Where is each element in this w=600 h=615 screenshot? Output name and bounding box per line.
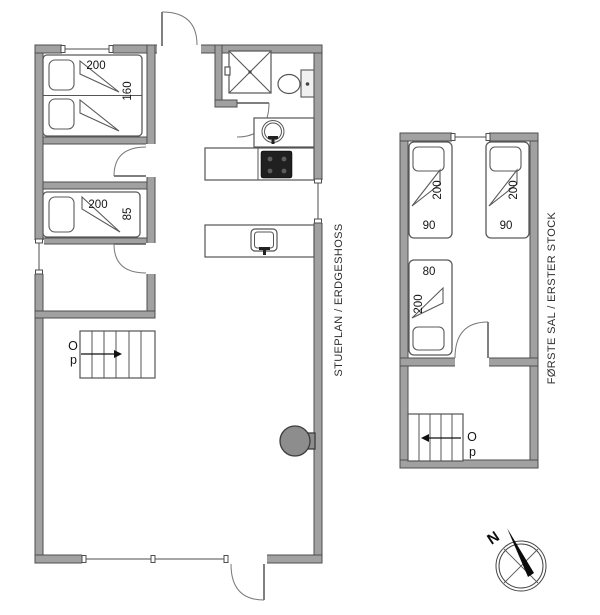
- bed-width-label: 90: [423, 220, 436, 232]
- window-cap: [315, 179, 322, 183]
- window-cap: [151, 556, 155, 563]
- bed-length-label: 200: [508, 180, 520, 199]
- wall-west: [35, 45, 43, 563]
- bedroom-door-opening: [455, 357, 489, 367]
- staircase-ground-floor: O p: [68, 331, 155, 378]
- pillow: [413, 327, 444, 350]
- sink-tap-spout: [272, 136, 275, 144]
- burner: [268, 157, 273, 162]
- hall-door-opening: [146, 243, 156, 274]
- ground-floor-plan: 200 160 200 85: [34, 12, 345, 600]
- bed-width-label: 85: [122, 208, 134, 221]
- toilet-bowl: [278, 75, 300, 94]
- shower-valve: [225, 67, 230, 75]
- wall-bedroom2-north: [43, 182, 147, 189]
- floor-plan-drawing: 200 160 200 85: [0, 0, 600, 615]
- bedroom1-door-swing: [114, 147, 146, 176]
- kitchen-counter: [205, 148, 314, 180]
- pillow: [49, 60, 74, 90]
- wall-bathroom-west: [215, 45, 222, 107]
- bed-top-left: 200 90: [409, 142, 452, 238]
- kitchen-tap-spout: [263, 247, 266, 255]
- staircase-first-floor: O p: [408, 414, 477, 461]
- window-cap: [315, 219, 322, 223]
- entrance-opening: [157, 44, 201, 54]
- bed-length-label: 200: [432, 180, 444, 199]
- north-label: N: [484, 528, 502, 548]
- bedroom-door-swing: [455, 322, 488, 358]
- bed-top-right: 200 90: [486, 142, 529, 238]
- double-bed: 200 160: [43, 55, 142, 136]
- stairs-up-label-o: O: [467, 430, 477, 444]
- hall-door-swing: [114, 244, 146, 273]
- terrace-door-swing: [231, 564, 264, 600]
- bedroom1-door-opening: [146, 144, 156, 177]
- bed-length-label: 200: [88, 199, 107, 211]
- wall-corridor: [147, 45, 155, 318]
- first-floor-plan: 200 90 200 90 80 200 O: [400, 132, 558, 468]
- wall-hall-south: [35, 311, 155, 318]
- window-cap: [486, 134, 490, 141]
- bathroom: [225, 51, 314, 147]
- wall-east: [530, 133, 538, 468]
- burner: [268, 169, 273, 174]
- stairs-up-label-p: p: [469, 445, 476, 459]
- window-cap: [224, 556, 228, 563]
- wall-bathroom-south: [215, 100, 237, 107]
- ground-floor-title: STUEPLAN / ERDGESHOSS: [333, 223, 345, 376]
- shower-drain: [248, 70, 251, 73]
- window-cap: [36, 239, 43, 243]
- window-cap: [61, 46, 65, 53]
- floor-plan-canvas: 200 160 200 85: [0, 0, 600, 615]
- bed-width-label: 160: [122, 81, 134, 100]
- bed-length-label: 200: [413, 294, 425, 313]
- pillow: [49, 99, 74, 129]
- window-cap: [109, 46, 113, 53]
- terrace-door-opening: [227, 554, 267, 564]
- wall-bedroom2-south: [43, 238, 147, 244]
- wood-stove: [280, 426, 315, 456]
- pillow: [413, 147, 444, 171]
- stairs-up-label-p: p: [70, 353, 77, 367]
- first-floor-title: FØRSTE SAL / ERSTER STOCK: [546, 211, 558, 384]
- kitchen: [205, 148, 314, 257]
- pillow: [49, 197, 74, 232]
- toilet-flush: [306, 82, 310, 86]
- window-cap: [36, 270, 43, 274]
- burner: [282, 157, 287, 162]
- single-bed: 200 85: [43, 192, 140, 237]
- first-floor-door: [455, 322, 488, 358]
- bed-length-label: 200: [86, 60, 105, 72]
- stairs-up-label-o: O: [68, 339, 78, 353]
- window-cap: [451, 134, 455, 141]
- wall-bedroom1-south: [43, 137, 147, 144]
- window-cap: [82, 556, 86, 563]
- cooktop: [261, 151, 292, 178]
- wall-west: [400, 133, 408, 468]
- pillow: [490, 147, 521, 171]
- bed-width-label: 80: [423, 266, 436, 278]
- bed-width-label: 90: [500, 220, 513, 232]
- entrance-door-swing: [162, 12, 197, 45]
- burner: [282, 169, 287, 174]
- first-floor-openings: [452, 132, 489, 367]
- compass: N: [484, 528, 546, 591]
- stove-body: [280, 426, 310, 456]
- wall-east: [314, 45, 322, 563]
- bed-lower: 80 200: [409, 260, 452, 355]
